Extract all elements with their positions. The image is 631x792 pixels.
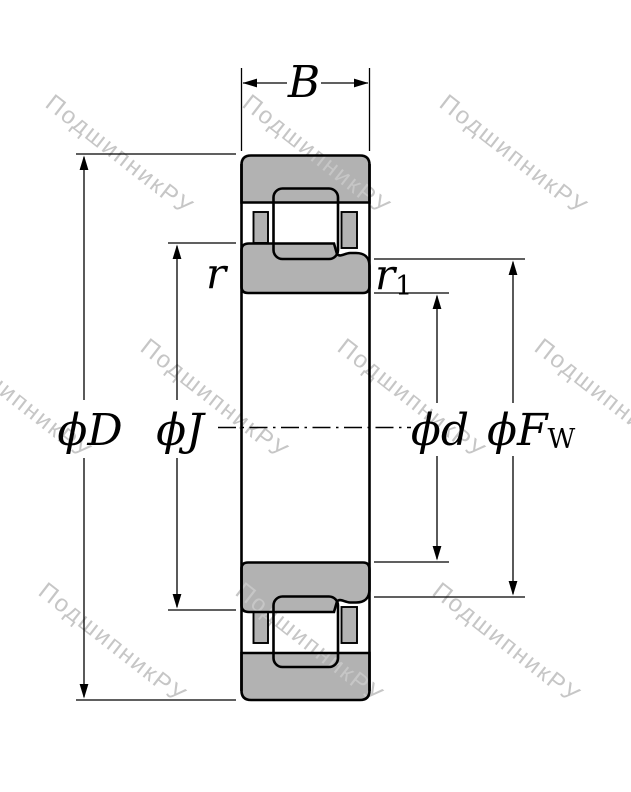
watermark-text: ПодшипникРУ [40,89,198,221]
watermark-text: ПодшипникРУ [434,89,592,221]
arrowhead-B-left [243,79,258,88]
label-B: B [287,57,320,108]
cage-bar-fill [254,212,269,243]
label-phiFw-subscript: W [548,424,576,455]
arrowhead-phiJ-down [173,594,182,609]
label-phid: ϕd [411,405,469,456]
bearing-drawing-page: ПодшипникРУ ПодшипникРУ ПодшипникРУ Подш… [0,0,631,792]
arrowhead-phiD-down [80,684,89,699]
label-r1-subscript: 1 [395,271,412,302]
arrowhead-phiFw-down [509,581,518,596]
arrowhead-phiD-up [80,156,89,171]
watermark-text: ПодшипникРУ [33,577,191,709]
cage-bar-fill [342,212,358,248]
arrowhead-phiFw-up [509,261,518,276]
arrowhead-phiJ-up [173,245,182,260]
cage-bar-fill [342,607,358,643]
inner-ring-top-fill [242,244,370,294]
arrowhead-phid-down [433,546,442,561]
label-r: r [206,249,229,298]
arrowhead-B-right [354,79,369,88]
bearing-diagram: ПодшипникРУ ПодшипникРУ ПодшипникРУ Подш… [0,0,631,792]
label-phiFw: ϕFW [487,405,576,456]
arrowhead-phid-up [433,295,442,310]
label-phiJ: ϕJ [156,405,206,456]
label-phiD: ϕD [57,405,122,456]
label-r1: r1 [375,250,412,302]
label-phiFw-main: ϕF [487,405,549,456]
